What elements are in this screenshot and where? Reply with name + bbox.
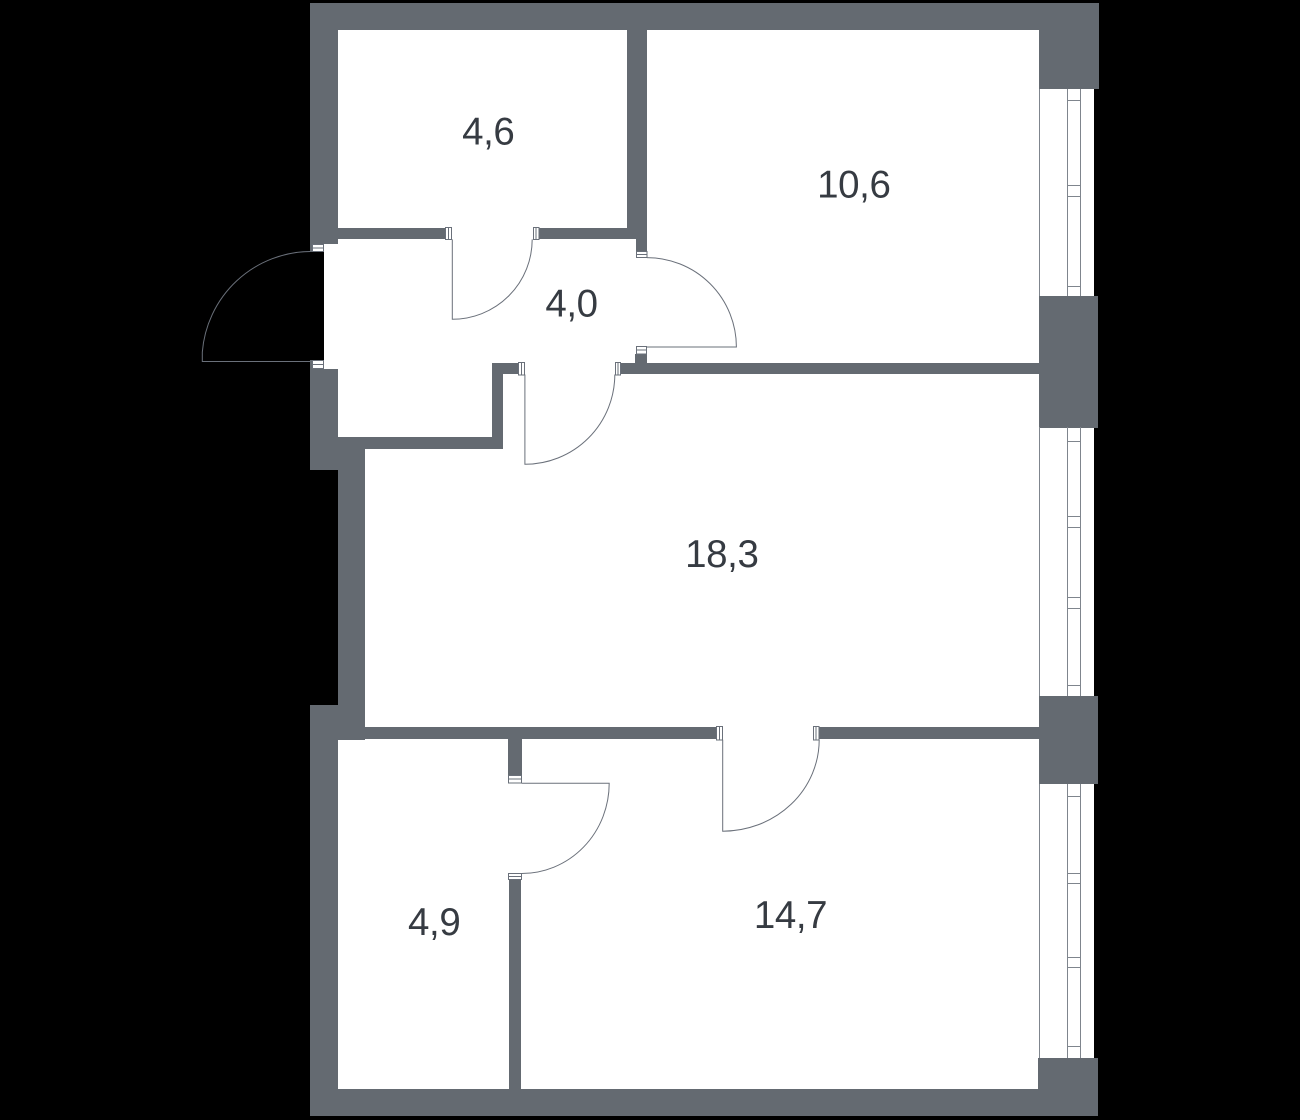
svg-text:4,0: 4,0 (545, 283, 597, 326)
svg-text:14,7: 14,7 (754, 894, 827, 937)
svg-text:4,6: 4,6 (462, 110, 514, 153)
svg-text:18,3: 18,3 (685, 533, 758, 576)
svg-text:4,9: 4,9 (408, 901, 460, 944)
svg-text:10,6: 10,6 (817, 163, 890, 206)
